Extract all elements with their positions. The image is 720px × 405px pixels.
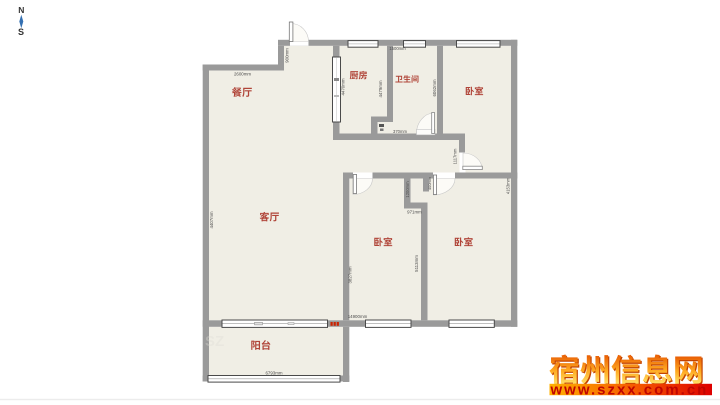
svg-text:SZ: SZ [205, 333, 224, 350]
svg-text:6793mm: 6793mm [265, 370, 282, 375]
svg-text:1200mm: 1200mm [405, 181, 410, 198]
svg-text:370mm: 370mm [393, 129, 407, 134]
svg-text:1117mm: 1117mm [452, 148, 457, 164]
svg-text:4479mm: 4479mm [378, 80, 383, 97]
svg-text:5113mm: 5113mm [414, 255, 419, 272]
svg-text:4407mm: 4407mm [209, 211, 214, 228]
svg-text:1500mm: 1500mm [389, 46, 406, 51]
svg-text:www.szxx.com.cn: www.szxx.com.cn [550, 382, 709, 399]
svg-text:900mm: 900mm [284, 48, 289, 63]
svg-text:N: N [18, 5, 24, 15]
svg-text:14900mm: 14900mm [348, 314, 368, 319]
svg-text:3827mm: 3827mm [347, 266, 352, 283]
svg-text:4470mm: 4470mm [340, 78, 345, 95]
svg-text:400mm: 400mm [427, 176, 432, 190]
svg-text:6062mm: 6062mm [432, 79, 437, 96]
svg-text:4153mm: 4153mm [505, 177, 510, 194]
svg-text:S: S [18, 27, 24, 37]
svg-text:971mm: 971mm [407, 210, 422, 215]
svg-text:2600mm: 2600mm [234, 72, 251, 77]
